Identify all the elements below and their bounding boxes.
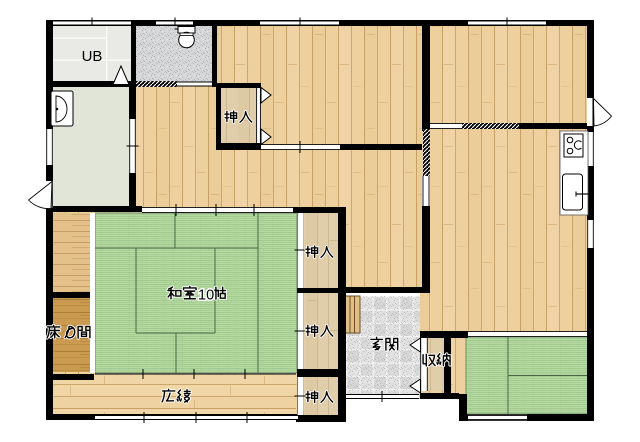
svg-text:UB: UB: [82, 48, 103, 65]
svg-text:10: 10: [198, 288, 214, 304]
